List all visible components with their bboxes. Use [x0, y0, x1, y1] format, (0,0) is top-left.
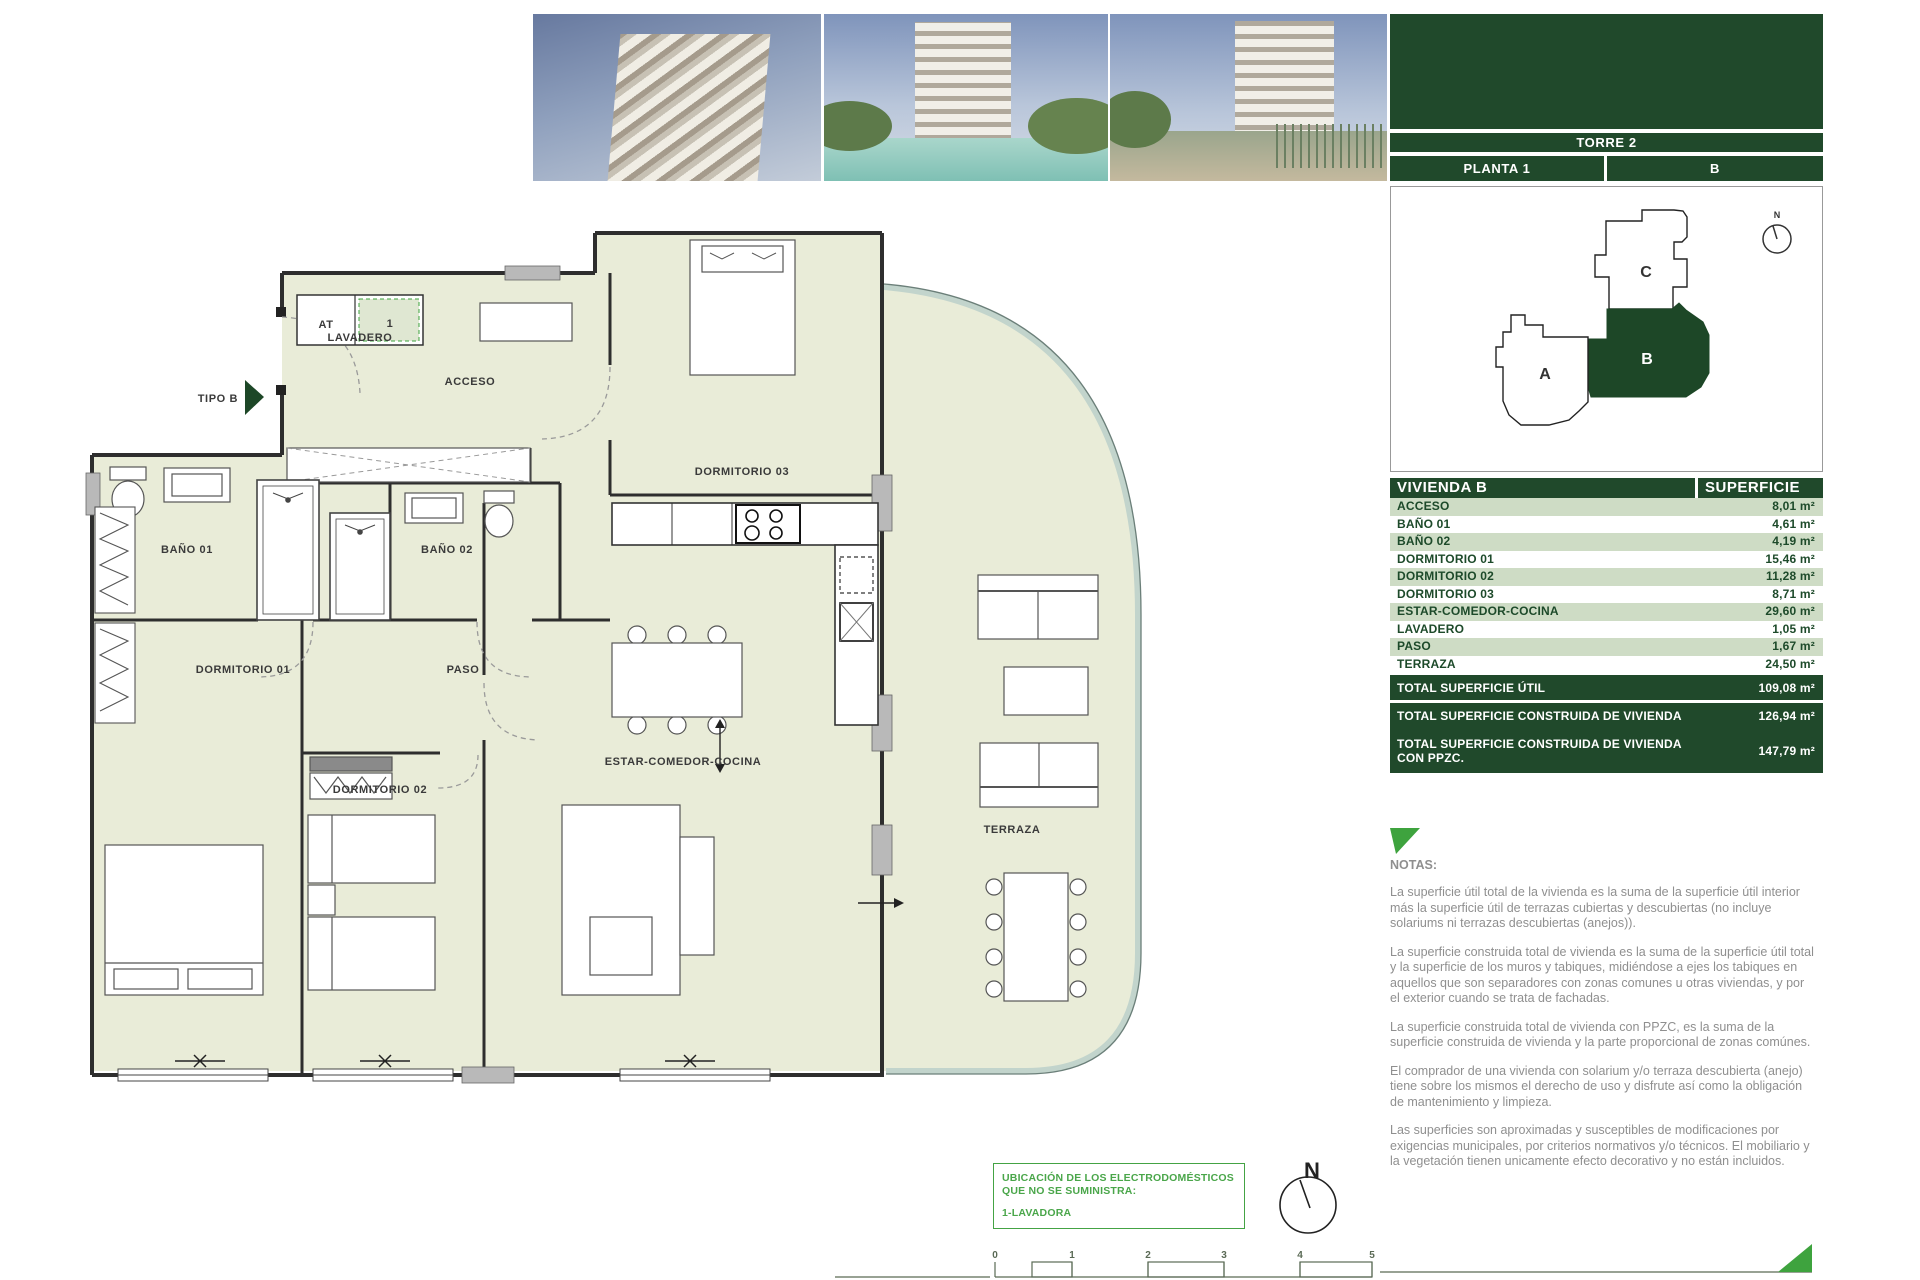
bottom-annotations: N 0 1 2 3 4 5: [820, 1130, 1860, 1280]
table-body: ACCESO8,01 m² BAÑO 014,61 m² BAÑO 024,19…: [1390, 498, 1823, 673]
keyplan-unit-b-label: B: [1641, 351, 1653, 368]
bottom-right-triangle: [1778, 1244, 1812, 1272]
key-plan-drawing: C A B N: [1391, 187, 1822, 471]
scale-bar-ticks: 0 1 2 3 4 5: [992, 1250, 1375, 1261]
table-row: BAÑO 014,61 m²: [1390, 516, 1823, 534]
tipo-b-marker: TIPO B: [198, 380, 264, 415]
building-render: [915, 22, 1012, 147]
total-ppzc-row: TOTAL SUPERFICIE CONSTRUIDA DE VIVIENDA …: [1390, 729, 1823, 773]
key-plan: C A B N: [1390, 186, 1823, 472]
keyplan-unit-c-shape: [1595, 210, 1687, 309]
floor-plan: TIPO B ACCESO DORMITORIO 03 BAÑO 01 BAÑO…: [60, 225, 1180, 1090]
label-unit1: 1: [387, 318, 394, 330]
fence: [1276, 124, 1387, 167]
total-construida-row: TOTAL SUPERFICIE CONSTRUIDA DE VIVIENDA1…: [1390, 703, 1823, 729]
panel-header-block: [1390, 14, 1823, 129]
table-superficie-header: SUPERFICIE: [1698, 478, 1823, 498]
building-render: [607, 34, 770, 181]
scale-bar: [995, 1262, 1372, 1277]
photo-building-1: [533, 14, 821, 181]
keyplan-north-compass: N: [1763, 210, 1791, 253]
room-label-bano01: BAÑO 01: [161, 543, 213, 556]
room-label-paso: PASO: [447, 664, 480, 676]
sideboard: [480, 303, 572, 341]
scale-tick: 3: [1221, 1250, 1227, 1261]
keyplan-unit-b-shape: [1588, 303, 1709, 397]
table-header-row: VIVIENDA B SUPERFICIE: [1390, 478, 1823, 498]
keyplan-unit-c-label: C: [1640, 264, 1652, 281]
room-label-estar: ESTAR-COMEDOR-COCINA: [605, 756, 762, 768]
table-title: VIVIENDA B: [1390, 478, 1695, 498]
windows: [118, 1069, 770, 1081]
planta-bar: PLANTA 1: [1390, 156, 1604, 181]
table-row: PASO1,67 m²: [1390, 638, 1823, 656]
door-jamb: [276, 307, 286, 317]
notes-paragraph: La superficie construida total de vivien…: [1390, 1020, 1816, 1051]
table-row: TERRAZA24,50 m²: [1390, 656, 1823, 674]
scale-tick: 4: [1297, 1250, 1303, 1261]
plan-sheet: TORRE 2 PLANTA 1 B C A B N VIVIE: [0, 0, 1920, 1280]
room-label-dorm03: DORMITORIO 03: [695, 466, 789, 478]
bottom-base-line: [835, 1272, 1812, 1277]
tipo-b-label: TIPO B: [198, 393, 238, 405]
scale-tick: 2: [1145, 1250, 1151, 1261]
room-label-bano02: BAÑO 02: [421, 543, 473, 556]
dining-set: [612, 626, 742, 734]
bed-dorm01: [105, 845, 263, 995]
scale-tick: 0: [992, 1250, 998, 1261]
photo-building-2: [824, 14, 1108, 181]
notes-section: NOTAS: La superficie útil total de la vi…: [1390, 828, 1816, 1170]
north-compass: N: [1280, 1158, 1336, 1233]
table-row: DORMITORIO 0211,28 m²: [1390, 568, 1823, 586]
room-label-terraza: TERRAZA: [984, 824, 1041, 836]
photo-building-3: [1110, 14, 1387, 181]
table-row: DORMITORIO 0115,46 m²: [1390, 551, 1823, 569]
unit-bar: B: [1607, 156, 1823, 181]
table-row: LAVADERO1,05 m²: [1390, 621, 1823, 639]
building-render: [1235, 21, 1335, 138]
keyplan-unit-a-label: A: [1539, 366, 1551, 383]
label-at: AT: [318, 319, 333, 331]
scale-tick: 1: [1069, 1250, 1075, 1261]
bed-dorm03: [690, 240, 795, 375]
room-label-dorm02: DORMITORIO 02: [333, 784, 427, 796]
total-util-row: TOTAL SUPERFICIE ÚTIL109,08 m²: [1390, 675, 1823, 700]
room-label-dorm01: DORMITORIO 01: [196, 664, 290, 676]
hall-wardrobe: [287, 448, 530, 482]
notes-paragraph: La superficie construida total de vivien…: [1390, 945, 1816, 1007]
room-label-acceso: ACCESO: [445, 376, 496, 388]
table-row: BAÑO 024,19 m²: [1390, 533, 1823, 551]
notes-title: NOTAS:: [1390, 858, 1816, 872]
door-jamb: [276, 385, 286, 395]
notes-paragraph: La superficie útil total de la vivienda …: [1390, 885, 1816, 932]
torre-bar: TORRE 2: [1390, 133, 1823, 152]
superficie-table: VIVIENDA B SUPERFICIE ACCESO8,01 m² BAÑO…: [1390, 478, 1823, 773]
table-row: ACCESO8,01 m²: [1390, 498, 1823, 516]
label-lavadero: LAVADERO: [328, 332, 393, 344]
scale-tick: 5: [1369, 1250, 1375, 1261]
table-row: DORMITORIO 038,71 m²: [1390, 586, 1823, 604]
notes-paragraph: El comprador de una vivienda con solariu…: [1390, 1064, 1816, 1111]
torre-label: TORRE 2: [1576, 135, 1636, 150]
unit-label: B: [1710, 161, 1720, 176]
table-row: ESTAR-COMEDOR-COCINA29,60 m²: [1390, 603, 1823, 621]
planta-label: PLANTA 1: [1464, 161, 1531, 176]
keyplan-north-label: N: [1774, 210, 1781, 220]
